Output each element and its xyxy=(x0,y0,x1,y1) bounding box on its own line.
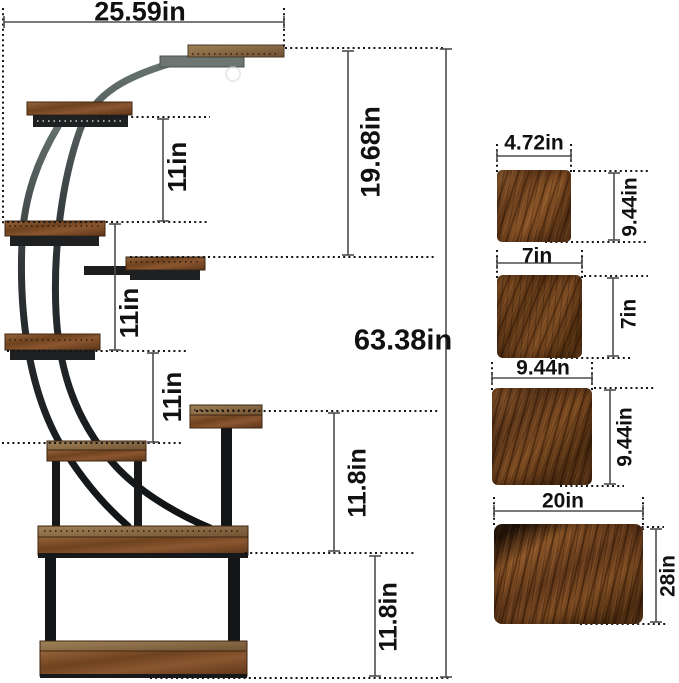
hanging-hook xyxy=(226,67,240,81)
board-swatch-base xyxy=(494,524,643,624)
dim-line-base-gap-1 xyxy=(328,413,340,551)
shelf-tier-4 xyxy=(5,221,105,246)
label-board2-height: 7in xyxy=(619,299,640,329)
label-overall-height: 63.38in xyxy=(354,327,452,356)
shelf-tier-3 xyxy=(126,257,205,280)
product-dimension-diagram: 25.59in 19.68in 11in 11in 11in 63.38in 1… xyxy=(0,0,679,683)
small-shelf-leg xyxy=(52,460,60,530)
dim-line-top-drop xyxy=(342,51,354,255)
label-board1-height: 9.44in xyxy=(620,177,641,237)
label-base-gap-1: 11.8in xyxy=(346,448,371,518)
shelf-tier-2 xyxy=(5,334,100,360)
board-swatch-square-7 xyxy=(497,275,582,358)
pedestal-post xyxy=(221,424,232,530)
base-shelf-middle xyxy=(38,526,248,558)
base-shelf-bottom xyxy=(40,641,247,678)
label-tier-gap-3: 11in xyxy=(159,372,185,423)
label-overall-width: 25.59in xyxy=(94,0,186,26)
dim-line-overall-height xyxy=(440,49,452,677)
small-shelf-leg xyxy=(134,460,142,530)
plant-stand-illustration xyxy=(5,45,284,678)
board-swatch-small xyxy=(497,170,571,242)
label-board1-width: 4.72in xyxy=(504,133,564,154)
label-board3-height: 9.44in xyxy=(615,407,636,467)
base-leg-left xyxy=(45,552,56,648)
shelf-tier-5 xyxy=(27,102,132,127)
shelf-tier-6 xyxy=(160,45,284,81)
label-tier-gap-2: 11in xyxy=(116,288,142,339)
label-board2-width: 7in xyxy=(522,246,552,267)
board-swatch-square-9 xyxy=(492,388,592,485)
label-tier-gap-1: 11in xyxy=(164,142,190,193)
shelf-pedestal xyxy=(190,405,262,428)
label-top-drop: 19.68in xyxy=(358,106,385,198)
label-base-gap-2: 11.8in xyxy=(377,582,402,652)
label-board4-height: 28in xyxy=(658,555,679,597)
label-board3-width: 9.44n xyxy=(516,358,570,379)
label-board4-width: 20in xyxy=(542,491,584,512)
